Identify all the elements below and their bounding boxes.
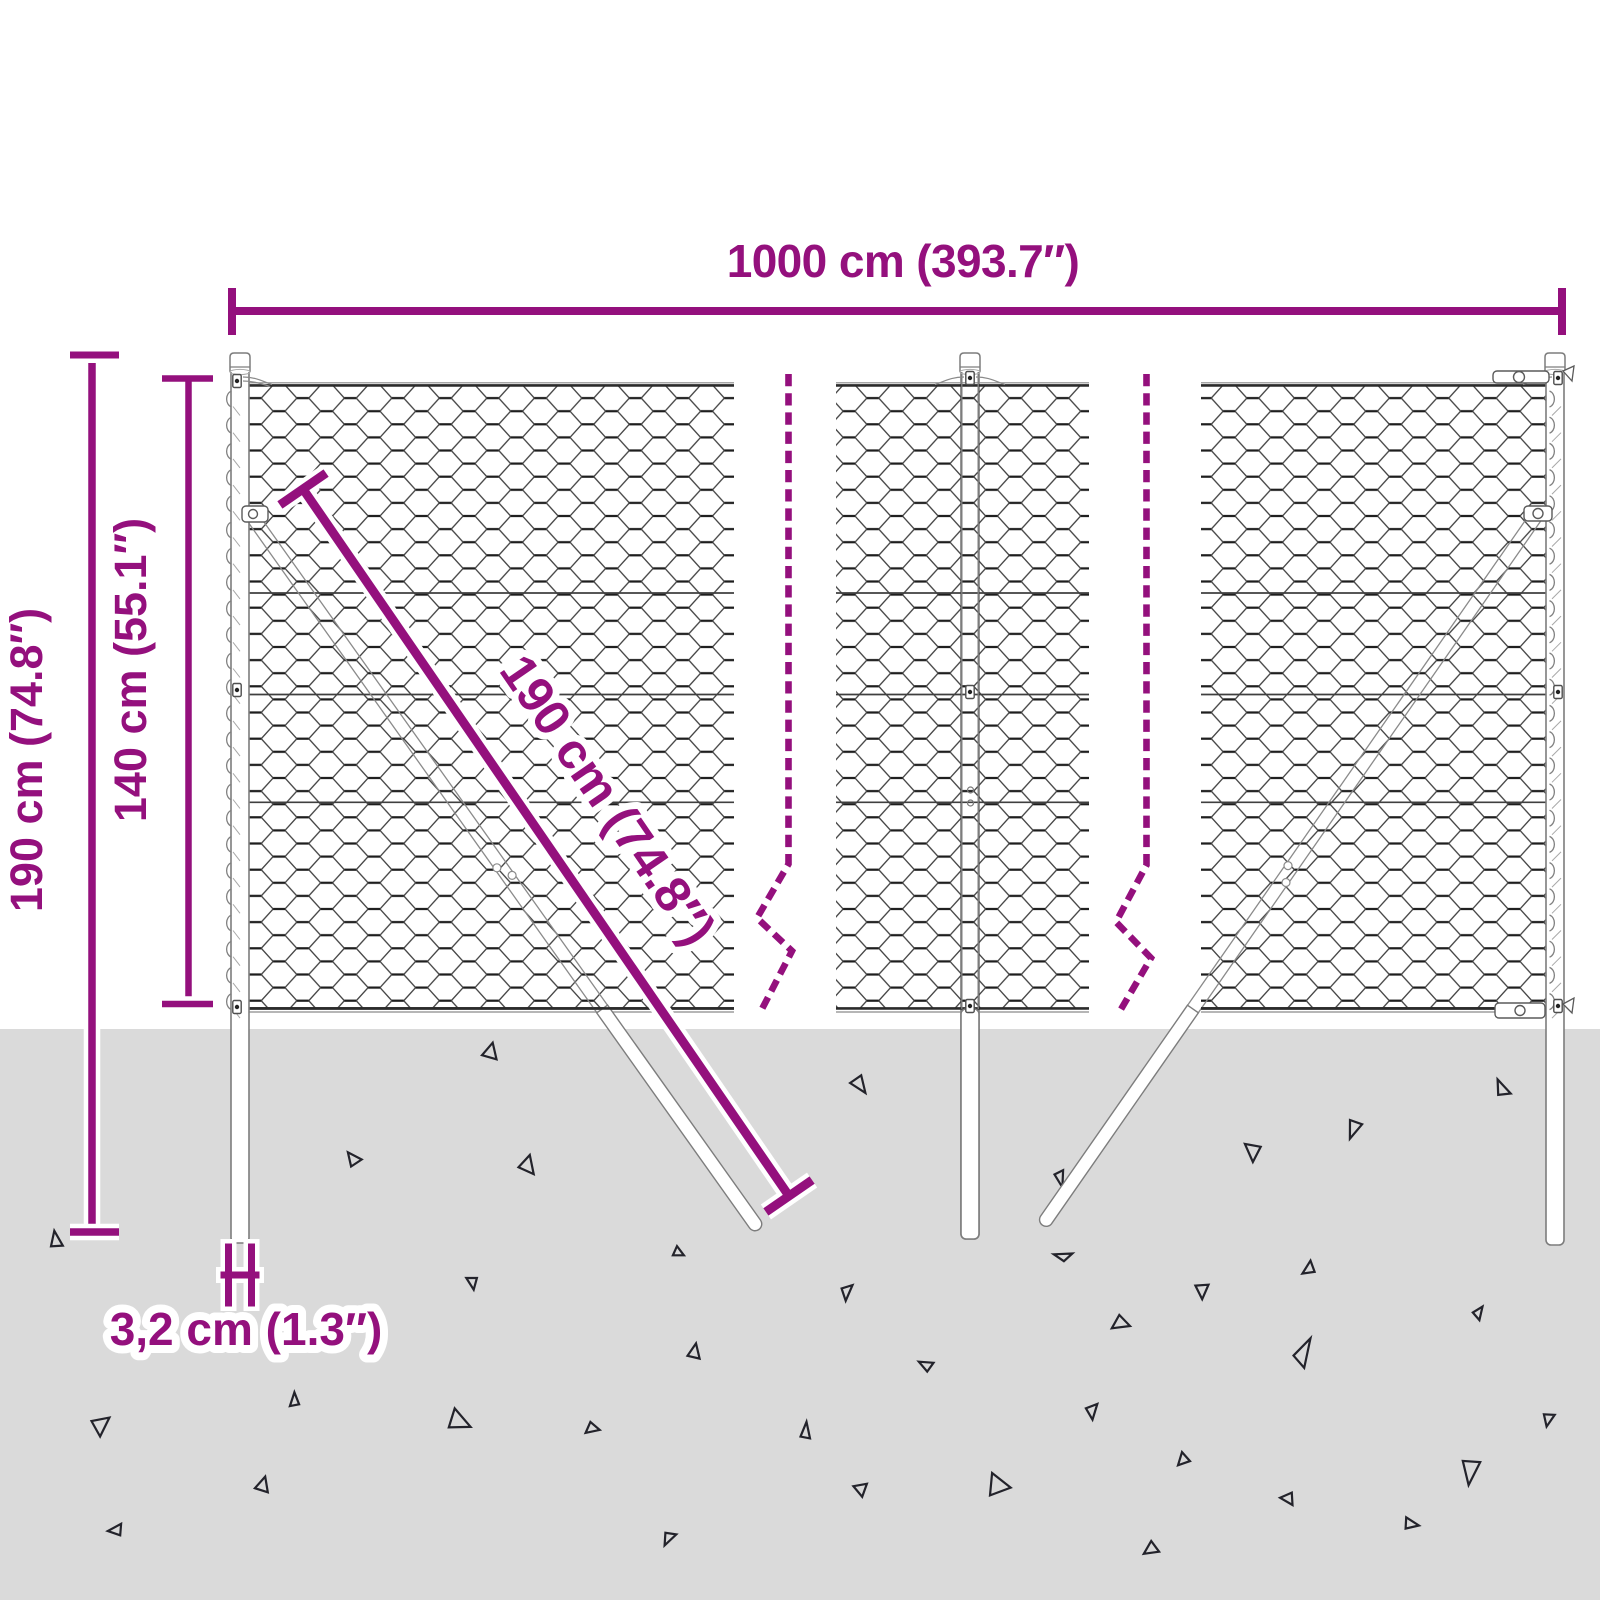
svg-text:1000 cm (393.7″): 1000 cm (393.7″) bbox=[727, 235, 1080, 287]
svg-text:140 cm (55.1″): 140 cm (55.1″) bbox=[105, 518, 156, 822]
svg-text:190 cm (74.8″): 190 cm (74.8″) bbox=[1, 608, 52, 912]
svg-text:3,2 cm (1.3″): 3,2 cm (1.3″) bbox=[110, 1303, 383, 1355]
